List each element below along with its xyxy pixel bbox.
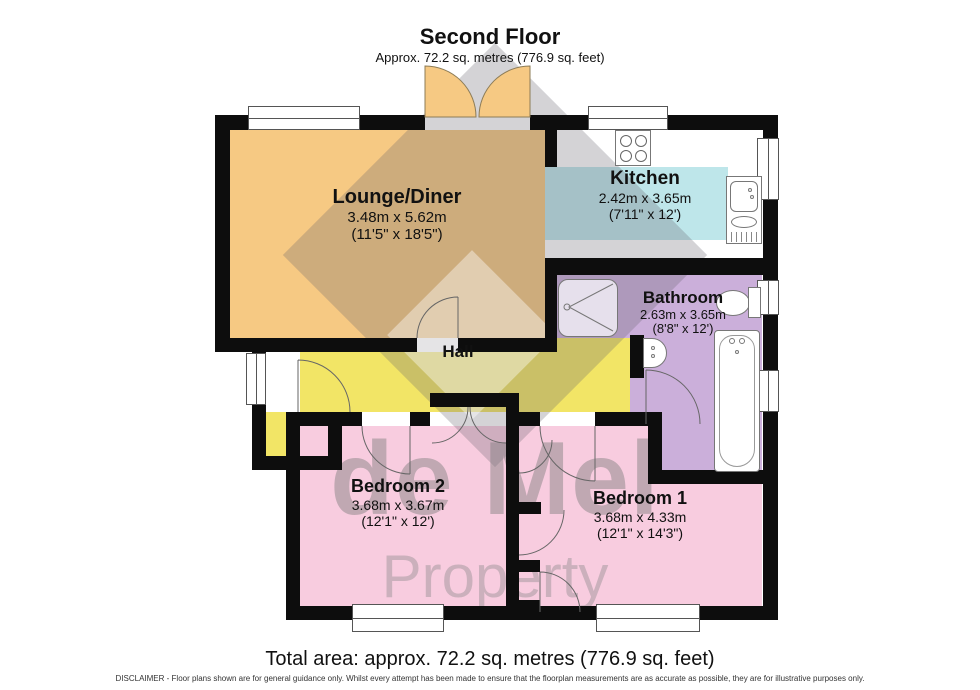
landing-door-arc (298, 360, 350, 412)
bedroom1-door-arc (540, 426, 595, 481)
bedroom2-name: Bedroom 2 (308, 476, 488, 497)
lounge-label: Lounge/Diner 3.48m x 5.62m (11'5" x 18'5… (287, 186, 507, 244)
closet-door-left-arc (432, 407, 468, 443)
hob-burners-icon (621, 136, 647, 162)
kitchen-imperial: (7'11" x 12') (555, 206, 735, 222)
page-subtitle: Approx. 72.2 sq. metres (776.9 sq. feet) (0, 50, 980, 65)
closet-door-right-arc (470, 407, 506, 443)
bathroom-name: Bathroom (598, 288, 768, 308)
bedroom2-door-arc (362, 426, 410, 474)
kitchen-metric: 2.42m x 3.65m (555, 190, 735, 206)
bedroom1-metric: 3.68m x 4.33m (550, 509, 730, 525)
total-area-text: Total area: approx. 72.2 sq. metres (776… (0, 648, 980, 671)
hall-name: Hall (398, 342, 518, 362)
bedroom2-metric: 3.68m x 3.67m (308, 497, 488, 513)
french-door-left-icon (425, 66, 476, 117)
bedroom1-label: Bedroom 1 3.68m x 4.33m (12'1" x 14'3") (550, 488, 730, 541)
bedroom2-imperial: (12'1" x 12') (308, 513, 488, 529)
lounge-metric: 3.48m x 5.62m (287, 209, 507, 226)
lounge-door-arc (417, 297, 458, 338)
cupboard-door-arc-1 (519, 440, 552, 473)
lounge-name: Lounge/Diner (287, 186, 507, 209)
kitchen-name: Kitchen (555, 168, 735, 190)
french-door-right-icon (479, 66, 530, 117)
bathroom-imperial: (8'8" x 12') (598, 322, 768, 337)
floorplan-page: Second Floor Approx. 72.2 sq. metres (77… (0, 0, 980, 690)
inner-door-arc (540, 572, 580, 612)
kitchen-label: Kitchen 2.42m x 3.65m (7'11" x 12') (555, 168, 735, 222)
hall-label: Hall (398, 342, 518, 362)
lounge-imperial: (11'5" x 18'5") (287, 226, 507, 243)
disclaimer-text: DISCLAIMER - Floor plans shown are for g… (0, 674, 980, 683)
bathroom-metric: 2.63m x 3.65m (598, 308, 768, 323)
bedroom2-label: Bedroom 2 3.68m x 3.67m (12'1" x 12') (308, 476, 488, 529)
bedroom1-name: Bedroom 1 (550, 488, 730, 509)
bathroom-door-arc (646, 370, 700, 424)
bathroom-label: Bathroom 2.63m x 3.65m (8'8" x 12') (598, 288, 768, 337)
page-title: Second Floor (0, 24, 980, 50)
bedroom1-imperial: (12'1" x 14'3") (550, 525, 730, 541)
